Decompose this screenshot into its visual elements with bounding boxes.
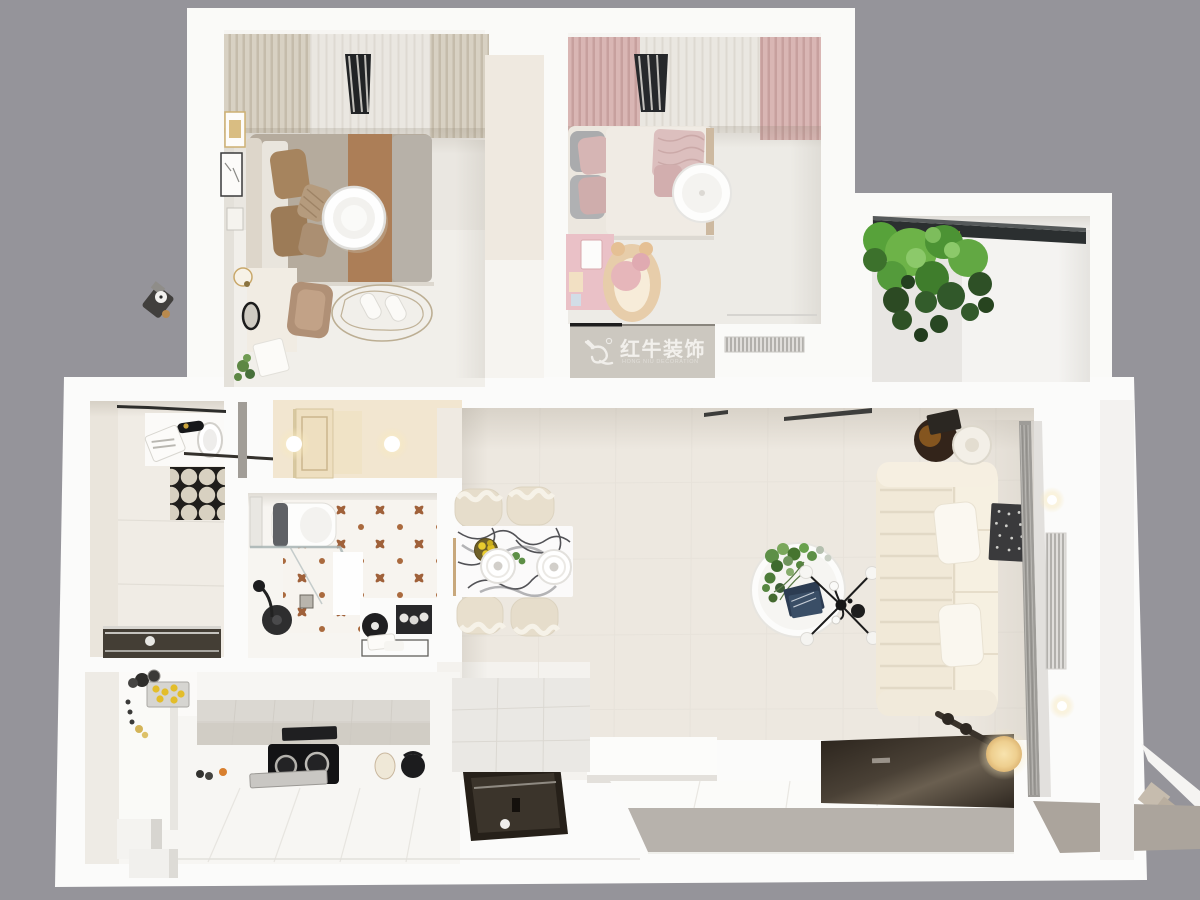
svg-text:HONG NIU DECORATION: HONG NIU DECORATION [622,359,699,365]
svg-text:红牛装饰: 红牛装饰 [620,337,706,361]
